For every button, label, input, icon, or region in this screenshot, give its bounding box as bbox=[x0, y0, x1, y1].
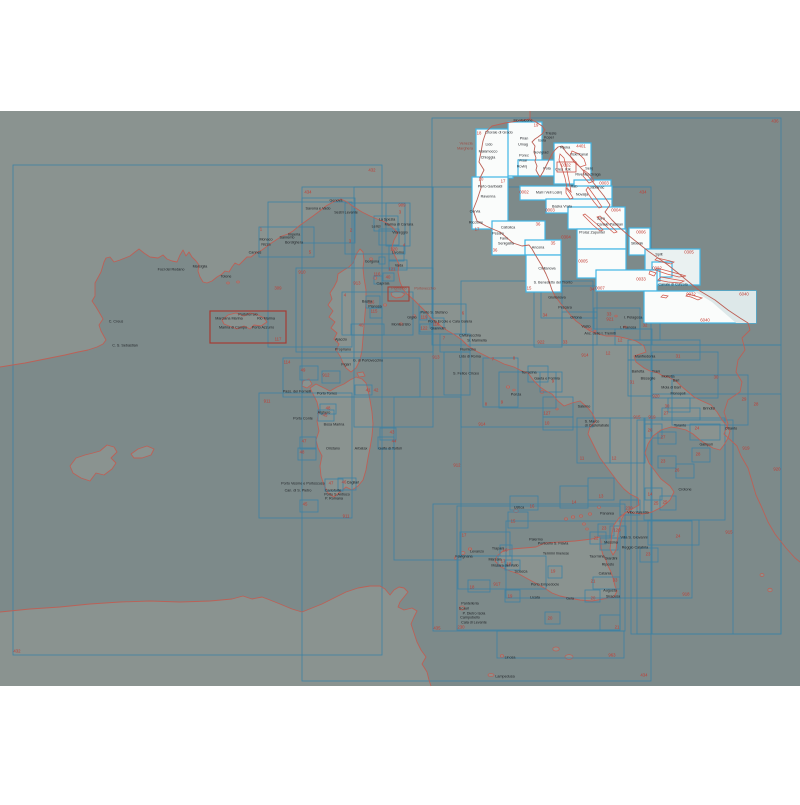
svg-text:Mola di Bari: Mola di Bari bbox=[661, 386, 681, 390]
svg-text:Porto Conte: Porto Conte bbox=[293, 417, 313, 421]
svg-text:Villa S. Giovanni: Villa S. Giovanni bbox=[621, 536, 648, 540]
svg-text:20: 20 bbox=[548, 616, 553, 621]
svg-text:920: 920 bbox=[652, 394, 660, 399]
svg-text:Cres: Cres bbox=[555, 168, 563, 172]
svg-text:Siracusa: Siracusa bbox=[606, 595, 621, 599]
svg-text:27: 27 bbox=[661, 435, 666, 440]
svg-text:Cagliari: Cagliari bbox=[347, 481, 360, 485]
svg-text:Ravenna: Ravenna bbox=[481, 195, 497, 199]
svg-text:Monaco: Monaco bbox=[259, 238, 272, 242]
svg-text:909: 909 bbox=[398, 203, 406, 208]
svg-text:29: 29 bbox=[742, 397, 747, 402]
svg-text:Ponza: Ponza bbox=[511, 393, 522, 397]
svg-text:Isola: Isola bbox=[538, 139, 547, 143]
svg-text:15: 15 bbox=[527, 286, 532, 291]
svg-text:0304: 0304 bbox=[561, 235, 571, 240]
svg-text:43: 43 bbox=[390, 430, 395, 435]
svg-text:23: 23 bbox=[646, 552, 651, 557]
svg-text:La Spezia: La Spezia bbox=[379, 218, 396, 222]
svg-text:Jablanac: Jablanac bbox=[590, 186, 605, 190]
svg-text:Porto Azzurro: Porto Azzurro bbox=[252, 326, 274, 330]
svg-text:921: 921 bbox=[606, 317, 614, 322]
svg-text:Panarea: Panarea bbox=[600, 512, 615, 516]
svg-text:Senj: Senj bbox=[585, 167, 593, 171]
svg-text:49: 49 bbox=[301, 368, 306, 373]
svg-text:Piran: Piran bbox=[520, 137, 529, 141]
svg-text:18: 18 bbox=[477, 131, 482, 136]
svg-text:20: 20 bbox=[591, 596, 596, 601]
svg-text:27: 27 bbox=[664, 411, 669, 416]
svg-text:963: 963 bbox=[608, 653, 616, 658]
svg-text:14: 14 bbox=[572, 500, 577, 505]
svg-text:Portovecchio: Portovecchio bbox=[414, 287, 435, 291]
svg-text:Tiski Kanal: Tiski Kanal bbox=[570, 153, 588, 157]
svg-text:Pola: Pola bbox=[543, 167, 551, 171]
svg-text:0002: 0002 bbox=[519, 190, 529, 195]
svg-text:C. S. Sebastian: C. S. Sebastian bbox=[112, 344, 138, 348]
svg-text:Ortona: Ortona bbox=[570, 316, 582, 320]
svg-text:Krk: Krk bbox=[565, 168, 571, 172]
svg-text:Pantelleria: Pantelleria bbox=[461, 602, 479, 606]
svg-text:434: 434 bbox=[640, 673, 648, 678]
svg-text:25: 25 bbox=[654, 501, 659, 506]
svg-text:436: 436 bbox=[771, 119, 779, 124]
svg-text:Novigrad: Novigrad bbox=[534, 151, 549, 155]
svg-text:15: 15 bbox=[511, 519, 516, 524]
svg-text:Ancona: Ancona bbox=[532, 246, 545, 250]
svg-text:922: 922 bbox=[537, 340, 545, 345]
svg-text:Savona e Vado: Savona e Vado bbox=[306, 207, 331, 211]
svg-text:19: 19 bbox=[551, 569, 556, 574]
svg-text:914: 914 bbox=[581, 353, 589, 358]
svg-text:Mazara del Vallo: Mazara del Vallo bbox=[491, 564, 518, 568]
svg-text:Vrsar: Vrsar bbox=[519, 159, 528, 163]
svg-text:Vasto: Vasto bbox=[581, 325, 590, 329]
svg-text:33: 33 bbox=[613, 578, 618, 583]
svg-text:S. Benedetto del Tronto: S. Benedetto del Tronto bbox=[534, 281, 573, 285]
svg-text:0005: 0005 bbox=[578, 259, 588, 264]
svg-text:35: 35 bbox=[551, 241, 556, 246]
svg-text:913: 913 bbox=[432, 355, 440, 360]
svg-text:23: 23 bbox=[602, 526, 607, 531]
svg-text:309: 309 bbox=[274, 286, 282, 291]
svg-text:Canale Pasman: Canale Pasman bbox=[597, 223, 623, 227]
svg-text:912: 912 bbox=[322, 373, 330, 378]
svg-text:Vibo Valentia: Vibo Valentia bbox=[627, 511, 649, 515]
svg-text:Monopoli: Monopoli bbox=[671, 392, 686, 396]
svg-text:Trapani: Trapani bbox=[492, 547, 505, 551]
svg-text:di Castellabate: di Castellabate bbox=[585, 424, 609, 428]
svg-text:Golfo di Tortoli: Golfo di Tortoli bbox=[378, 447, 402, 451]
svg-text:S. Felice Circeo: S. Felice Circeo bbox=[453, 372, 479, 376]
svg-text:0006: 0006 bbox=[636, 230, 646, 235]
svg-text:Taormina: Taormina bbox=[589, 555, 605, 559]
svg-text:Lampedusa: Lampedusa bbox=[495, 675, 515, 679]
svg-text:Lido di Roma: Lido di Roma bbox=[459, 355, 482, 359]
svg-text:Sestri Levante: Sestri Levante bbox=[334, 211, 358, 215]
svg-text:36: 36 bbox=[536, 222, 541, 227]
svg-text:Salerno: Salerno bbox=[578, 405, 591, 409]
svg-text:26: 26 bbox=[675, 468, 680, 473]
svg-text:Umag: Umag bbox=[518, 143, 528, 147]
svg-text:Pass. dei Fornelli: Pass. dei Fornelli bbox=[283, 390, 311, 394]
svg-text:Bosa Marina: Bosa Marina bbox=[324, 423, 346, 427]
svg-text:Gaeta e Formia: Gaeta e Formia bbox=[534, 377, 561, 381]
svg-text:Mali i Veli Losinj: Mali i Veli Losinj bbox=[536, 191, 562, 195]
svg-text:Rovinj: Rovinj bbox=[517, 165, 527, 169]
svg-text:40: 40 bbox=[386, 275, 391, 280]
svg-text:17: 17 bbox=[501, 179, 506, 184]
svg-text:32: 32 bbox=[643, 323, 648, 328]
svg-text:Cattolica: Cattolica bbox=[501, 226, 516, 230]
svg-text:18: 18 bbox=[470, 585, 475, 590]
svg-text:Montecristo: Montecristo bbox=[391, 323, 410, 327]
svg-text:Pescara: Pescara bbox=[558, 306, 572, 310]
svg-text:Malamocco: Malamocco bbox=[479, 150, 498, 154]
svg-text:Pianosa: Pianosa bbox=[368, 305, 382, 309]
svg-text:Campobello: Campobello bbox=[460, 616, 480, 620]
svg-text:21: 21 bbox=[591, 579, 596, 584]
svg-text:Licata: Licata bbox=[530, 596, 541, 600]
svg-text:Barletta: Barletta bbox=[632, 370, 646, 374]
svg-text:119: 119 bbox=[421, 315, 428, 320]
svg-text:Giulianova: Giulianova bbox=[548, 296, 566, 300]
svg-text:Marsala: Marsala bbox=[488, 558, 502, 562]
svg-text:24: 24 bbox=[676, 534, 681, 539]
svg-text:Porec: Porec bbox=[519, 154, 529, 158]
svg-text:919: 919 bbox=[648, 415, 656, 420]
svg-text:915: 915 bbox=[725, 530, 733, 535]
svg-text:Civitanova: Civitanova bbox=[538, 267, 556, 271]
svg-text:Figari: Figari bbox=[341, 363, 350, 367]
svg-text:911: 911 bbox=[343, 514, 350, 519]
svg-text:25: 25 bbox=[663, 500, 668, 505]
svg-text:17: 17 bbox=[475, 227, 480, 232]
svg-text:34: 34 bbox=[543, 313, 548, 318]
svg-text:Split: Split bbox=[655, 253, 662, 257]
svg-text:48: 48 bbox=[300, 450, 305, 455]
svg-text:435: 435 bbox=[433, 626, 441, 631]
svg-text:Capraia: Capraia bbox=[377, 282, 391, 286]
svg-text:31: 31 bbox=[630, 380, 635, 385]
svg-text:Porto Vesme e Portoscuso: Porto Vesme e Portoscuso bbox=[281, 482, 325, 486]
svg-text:Civitavecchia: Civitavecchia bbox=[459, 334, 482, 338]
svg-text:Venezia: Venezia bbox=[459, 142, 473, 146]
svg-text:432: 432 bbox=[13, 649, 21, 654]
svg-text:911: 911 bbox=[264, 399, 271, 404]
svg-text:Marina di Carrara: Marina di Carrara bbox=[385, 223, 415, 227]
svg-text:Anc. delle I. Tremiti: Anc. delle I. Tremiti bbox=[584, 332, 616, 336]
svg-text:Taranto: Taranto bbox=[674, 424, 686, 428]
svg-text:Porto S. Stefano: Porto S. Stefano bbox=[420, 311, 447, 315]
svg-text:912: 912 bbox=[453, 463, 461, 468]
svg-text:Trani: Trani bbox=[652, 370, 660, 374]
svg-text:Otranto: Otranto bbox=[725, 427, 737, 431]
svg-text:I. Pelagosa: I. Pelagosa bbox=[624, 316, 643, 320]
svg-text:Sanremo: Sanremo bbox=[280, 236, 295, 240]
svg-text:Pesaro: Pesaro bbox=[492, 232, 504, 236]
svg-text:Canale di Curzola: Canale di Curzola bbox=[658, 283, 688, 287]
svg-text:Oristano: Oristano bbox=[326, 447, 340, 451]
svg-text:Propriano: Propriano bbox=[335, 348, 351, 352]
svg-text:Fiumicino: Fiumicino bbox=[460, 348, 476, 352]
svg-text:Porto Garibaldi: Porto Garibaldi bbox=[478, 185, 503, 189]
svg-text:0022: 0022 bbox=[652, 266, 662, 271]
svg-text:Lerici: Lerici bbox=[372, 225, 381, 229]
svg-text:Lido: Lido bbox=[486, 143, 493, 147]
svg-text:26: 26 bbox=[648, 428, 653, 433]
svg-text:11: 11 bbox=[580, 456, 585, 461]
svg-text:4401: 4401 bbox=[576, 144, 586, 149]
svg-text:Porto Torres: Porto Torres bbox=[317, 392, 337, 396]
svg-text:G. di Portovecchio: G. di Portovecchio bbox=[353, 359, 383, 363]
svg-text:12: 12 bbox=[606, 351, 611, 356]
svg-text:28: 28 bbox=[754, 402, 759, 407]
svg-text:432: 432 bbox=[368, 168, 376, 173]
svg-text:Piombino: Piombino bbox=[391, 287, 406, 291]
svg-text:Cannes: Cannes bbox=[249, 251, 262, 255]
svg-text:I. Pianosa: I. Pianosa bbox=[620, 326, 637, 330]
svg-text:36: 36 bbox=[493, 248, 498, 253]
svg-text:20: 20 bbox=[479, 177, 484, 182]
svg-text:Sibenik: Sibenik bbox=[631, 242, 643, 246]
svg-text:33: 33 bbox=[607, 312, 612, 317]
svg-text:34: 34 bbox=[590, 287, 595, 292]
svg-text:44: 44 bbox=[392, 439, 397, 444]
svg-text:Brindisi: Brindisi bbox=[703, 407, 715, 411]
svg-text:114: 114 bbox=[284, 360, 291, 365]
svg-text:22: 22 bbox=[594, 536, 599, 541]
svg-text:Marciana Marina: Marciana Marina bbox=[215, 317, 243, 321]
svg-text:Scauri: Scauri bbox=[459, 607, 470, 611]
svg-text:Rio Marina: Rio Marina bbox=[257, 317, 276, 321]
svg-text:Cala di Levante: Cala di Levante bbox=[461, 621, 487, 625]
svg-text:17: 17 bbox=[462, 533, 467, 538]
svg-text:14: 14 bbox=[648, 492, 653, 497]
svg-text:Porticello S. Flavia: Porticello S. Flavia bbox=[538, 542, 569, 546]
svg-text:Bastia: Bastia bbox=[362, 300, 373, 304]
svg-text:Viareggio: Viareggio bbox=[392, 231, 408, 235]
svg-text:21: 21 bbox=[615, 625, 620, 630]
svg-text:Zara: Zara bbox=[597, 217, 606, 221]
svg-text:Giannutri: Giannutri bbox=[431, 327, 446, 331]
svg-text:Rivenica Draga: Rivenica Draga bbox=[575, 173, 601, 177]
svg-text:30: 30 bbox=[714, 375, 719, 380]
svg-text:918: 918 bbox=[682, 592, 690, 597]
svg-text:230: 230 bbox=[457, 625, 465, 630]
svg-text:116: 116 bbox=[374, 272, 381, 277]
svg-text:Prolaz Zapuntel: Prolaz Zapuntel bbox=[579, 231, 605, 235]
svg-text:Rab: Rab bbox=[571, 185, 578, 189]
svg-text:Alghero: Alghero bbox=[318, 411, 331, 415]
svg-text:Crotone: Crotone bbox=[678, 488, 691, 492]
svg-text:Porto Ercole e Cala Galera: Porto Ercole e Cala Galera bbox=[428, 320, 473, 324]
svg-text:23: 23 bbox=[661, 459, 666, 464]
svg-text:Augusta: Augusta bbox=[603, 589, 617, 593]
svg-text:Gela: Gela bbox=[566, 597, 575, 601]
svg-text:434: 434 bbox=[304, 190, 312, 195]
svg-text:913: 913 bbox=[353, 281, 361, 286]
svg-text:Senigallia: Senigallia bbox=[498, 242, 515, 246]
svg-text:Chioggia: Chioggia bbox=[481, 156, 497, 160]
svg-text:Sciacca: Sciacca bbox=[515, 570, 529, 574]
svg-text:Nizza: Nizza bbox=[261, 243, 271, 247]
svg-text:19: 19 bbox=[534, 123, 539, 128]
svg-text:19: 19 bbox=[508, 594, 513, 599]
svg-text:Litorale di Grado: Litorale di Grado bbox=[485, 131, 512, 135]
svg-text:Bisceglie: Bisceglie bbox=[641, 377, 656, 381]
svg-text:Riposto: Riposto bbox=[602, 563, 615, 567]
svg-text:917: 917 bbox=[493, 582, 501, 587]
svg-text:24: 24 bbox=[695, 426, 700, 431]
svg-text:28: 28 bbox=[696, 452, 701, 457]
svg-text:47: 47 bbox=[302, 439, 307, 444]
svg-text:915: 915 bbox=[633, 415, 641, 420]
svg-text:Gorgona: Gorgona bbox=[365, 260, 380, 264]
svg-text:33: 33 bbox=[563, 340, 568, 345]
svg-text:910: 910 bbox=[298, 270, 306, 275]
svg-text:117: 117 bbox=[275, 337, 282, 342]
svg-text:Gallipoli: Gallipoli bbox=[699, 443, 712, 447]
svg-text:Livorno: Livorno bbox=[392, 251, 404, 255]
svg-text:920: 920 bbox=[773, 467, 781, 472]
svg-text:6040: 6040 bbox=[739, 292, 749, 297]
svg-text:Ajaccio: Ajaccio bbox=[335, 338, 347, 342]
svg-text:0032: 0032 bbox=[686, 292, 696, 297]
svg-text:Termini Imerese: Termini Imerese bbox=[543, 552, 569, 556]
svg-text:16: 16 bbox=[530, 504, 535, 509]
svg-text:Bari: Bari bbox=[673, 379, 680, 383]
svg-text:127: 127 bbox=[543, 411, 551, 416]
svg-text:13: 13 bbox=[599, 494, 604, 499]
svg-text:Foci del Rodano: Foci del Rodano bbox=[158, 268, 185, 272]
svg-text:Vada: Vada bbox=[395, 264, 404, 268]
svg-text:Monfalcone: Monfalcone bbox=[513, 119, 532, 123]
svg-text:434: 434 bbox=[639, 190, 647, 195]
svg-text:Ustica: Ustica bbox=[514, 506, 525, 510]
svg-text:Arbatax: Arbatax bbox=[355, 447, 368, 451]
svg-text:Linosa: Linosa bbox=[505, 656, 517, 660]
svg-text:12: 12 bbox=[618, 338, 623, 343]
svg-text:45: 45 bbox=[303, 502, 308, 507]
svg-text:C. Creus: C. Creus bbox=[109, 320, 124, 324]
svg-text:Catania: Catania bbox=[599, 572, 613, 576]
svg-text:0305: 0305 bbox=[684, 250, 694, 255]
svg-text:0033: 0033 bbox=[636, 277, 646, 282]
svg-text:Genova: Genova bbox=[330, 199, 344, 203]
svg-text:Giardini: Giardini bbox=[605, 557, 618, 561]
svg-text:Bordighera: Bordighera bbox=[285, 241, 304, 245]
svg-text:122: 122 bbox=[420, 326, 428, 331]
svg-text:115: 115 bbox=[371, 309, 378, 314]
svg-text:S. Marinella: S. Marinella bbox=[467, 339, 487, 343]
svg-text:Porto Empedocle: Porto Empedocle bbox=[531, 583, 559, 587]
svg-text:Marghera: Marghera bbox=[457, 147, 474, 151]
svg-text:P. Romana: P. Romana bbox=[325, 497, 344, 501]
svg-text:Messina: Messina bbox=[604, 541, 619, 545]
svg-text:30: 30 bbox=[665, 404, 670, 409]
svg-text:12: 12 bbox=[612, 456, 617, 461]
svg-text:Cervia: Cervia bbox=[470, 210, 482, 214]
svg-text:Levanzo: Levanzo bbox=[470, 550, 484, 554]
svg-text:0007: 0007 bbox=[595, 286, 605, 291]
svg-text:Marsiglia: Marsiglia bbox=[193, 265, 209, 269]
svg-text:41: 41 bbox=[366, 388, 371, 393]
svg-text:Riccione: Riccione bbox=[469, 221, 483, 225]
svg-text:Favignana: Favignana bbox=[455, 555, 473, 559]
svg-text:Can. di S. Pietro: Can. di S. Pietro bbox=[285, 489, 312, 493]
svg-text:47: 47 bbox=[329, 481, 334, 486]
svg-text:40: 40 bbox=[359, 323, 364, 328]
svg-text:Rijeka: Rijeka bbox=[560, 146, 571, 150]
svg-text:31: 31 bbox=[676, 354, 681, 359]
svg-text:Fano: Fano bbox=[500, 237, 508, 241]
svg-text:919: 919 bbox=[742, 446, 750, 451]
svg-text:914: 914 bbox=[478, 422, 486, 427]
svg-text:0004: 0004 bbox=[611, 208, 621, 213]
svg-text:42: 42 bbox=[374, 388, 379, 393]
svg-text:Baska Vrata: Baska Vrata bbox=[552, 205, 573, 209]
svg-text:Marina di Campo: Marina di Campo bbox=[219, 326, 247, 330]
svg-text:Tolone: Tolone bbox=[221, 275, 232, 279]
svg-text:Novalja: Novalja bbox=[576, 193, 589, 197]
svg-text:Manfredonia: Manfredonia bbox=[635, 355, 656, 359]
svg-text:120: 120 bbox=[613, 528, 621, 533]
svg-text:Terracina: Terracina bbox=[521, 371, 537, 375]
svg-text:10: 10 bbox=[545, 421, 550, 426]
svg-text:Giglio: Giglio bbox=[407, 316, 416, 320]
svg-text:6040: 6040 bbox=[700, 318, 710, 323]
svg-text:Reggio Calabria: Reggio Calabria bbox=[622, 546, 649, 550]
